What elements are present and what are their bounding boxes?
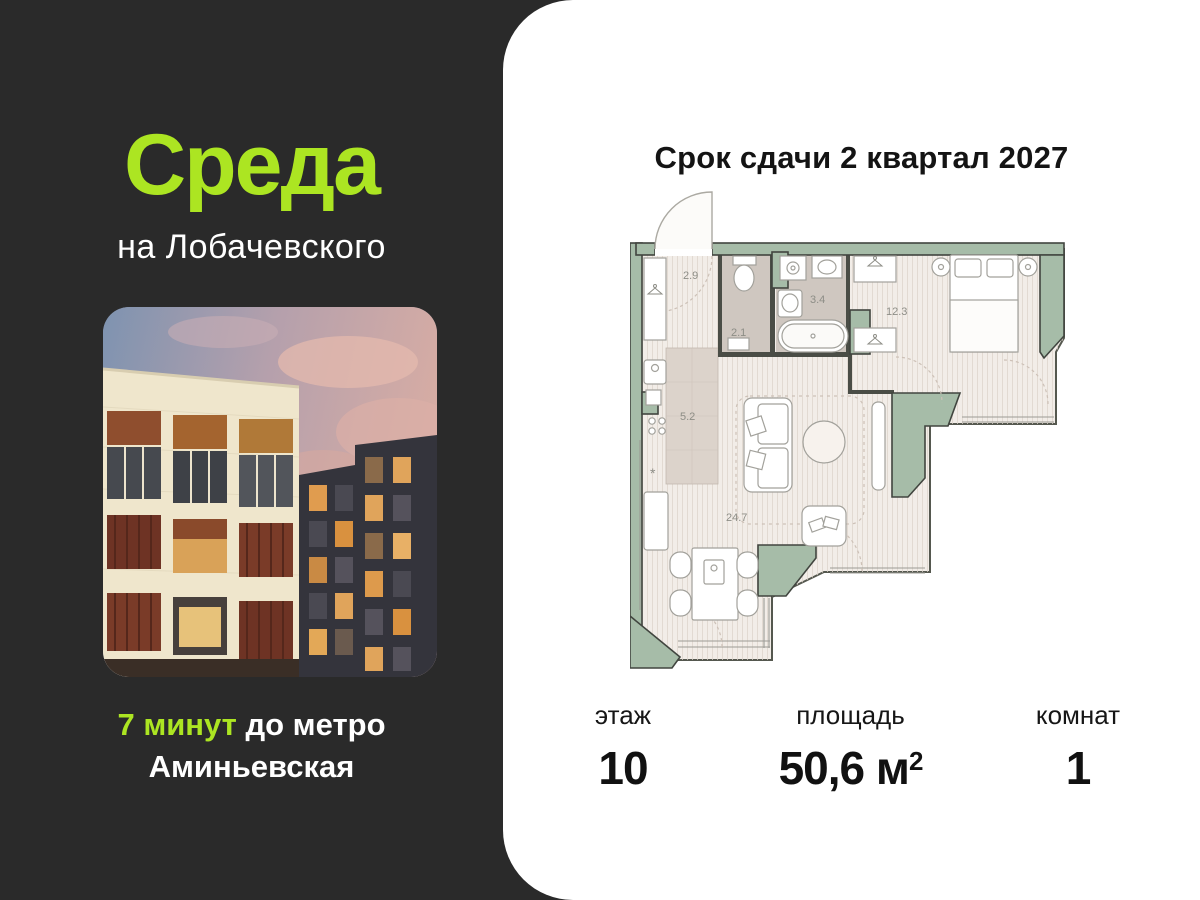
stat-area-label: площадь [779,700,923,731]
left-panel: Среда на Лобачевского [0,0,503,900]
brand-logo: Среда [0,122,503,208]
stat-rooms-value: 1 [1018,741,1138,795]
floorplan: 2.9 2.1 3.4 12.3 5.2 24.7 * [630,190,1070,690]
delivery-date-title: Срок сдачи 2 квартал 2027 [563,140,1160,176]
apartment-stats: этаж 10 площадь 50,6 м2 комнат 1 [563,700,1138,795]
metro-minutes: 7 минут [117,707,236,742]
stat-floor-value: 10 [563,741,683,795]
bathroom-area-label: 3.4 [810,294,825,306]
stat-area-value: 50,6 м2 [779,741,923,795]
living-area-label: 24.7 [726,512,747,524]
entry-door [655,192,712,249]
stat-floor: этаж 10 [563,700,683,795]
bedroom-area-label: 12.3 [886,306,907,318]
stat-area-sup: 2 [909,746,922,776]
brand-sublogo: на Лобачевского [0,228,503,267]
stat-area: площадь 50,6 м2 [779,700,923,795]
banner: Среда на Лобачевского [0,0,1200,900]
wc-area-label: 2.1 [731,327,746,339]
building-render-illustration [103,307,437,677]
hallway-area-label: 2.9 [683,270,698,282]
building-photo [103,307,437,677]
stat-rooms: комнат 1 [1018,700,1138,795]
kitchen-area-label: 5.2 [680,411,695,423]
stat-floor-label: этаж [563,700,683,731]
stat-rooms-label: комнат [1018,700,1138,731]
metro-distance-text: 7 минут до метро Аминьевская [0,704,503,788]
metro-station: Аминьевская [149,749,355,784]
floorplan-drawing: 2.9 2.1 3.4 12.3 5.2 24.7 * [630,190,1070,690]
metro-rest: до метро [237,707,386,742]
info-panel: Срок сдачи 2 квартал 2027 [503,0,1200,900]
freezer-star-icon: * [650,465,656,481]
